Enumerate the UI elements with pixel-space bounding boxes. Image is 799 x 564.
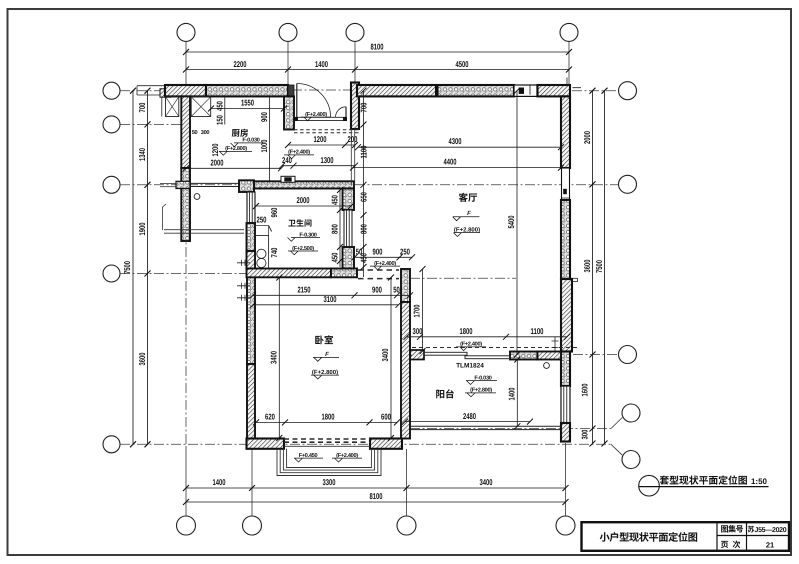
svg-text:300: 300 (413, 326, 423, 336)
svg-text:2000: 2000 (211, 157, 224, 167)
svg-text:900: 900 (259, 112, 269, 122)
svg-text:1200: 1200 (314, 134, 327, 144)
svg-text:900: 900 (373, 247, 383, 257)
svg-text:7500: 7500 (122, 261, 132, 274)
svg-text:1400: 1400 (507, 387, 517, 400)
svg-text:1340: 1340 (137, 148, 147, 161)
svg-text:2200: 2200 (234, 59, 247, 69)
svg-text:5400: 5400 (506, 215, 516, 228)
svg-text:450: 450 (329, 195, 339, 205)
svg-text:8100: 8100 (371, 42, 384, 52)
svg-text:650: 650 (359, 192, 369, 202)
svg-text:50: 50 (192, 130, 198, 136)
svg-text:2000: 2000 (297, 195, 310, 205)
svg-text:1100: 1100 (531, 326, 544, 336)
svg-text:150: 150 (214, 115, 224, 125)
svg-text:300: 300 (580, 429, 590, 439)
svg-text:3400: 3400 (380, 348, 390, 361)
svg-text:2000: 2000 (582, 131, 592, 144)
svg-text:J55—2020: J55—2020 (755, 527, 787, 534)
svg-text:620: 620 (265, 411, 275, 421)
svg-text:1300: 1300 (321, 155, 334, 165)
svg-text:200: 200 (348, 134, 358, 144)
svg-text:21: 21 (766, 540, 774, 549)
svg-text:F: F (325, 351, 329, 358)
svg-text:450: 450 (329, 252, 339, 262)
svg-text:1200: 1200 (210, 143, 220, 156)
svg-text:240: 240 (282, 155, 292, 165)
svg-text:3100: 3100 (324, 294, 337, 304)
svg-text:1600: 1600 (580, 383, 590, 396)
svg-text:1:50: 1:50 (751, 477, 768, 486)
svg-text:800: 800 (329, 224, 339, 234)
svg-text:900: 900 (372, 285, 382, 295)
svg-text:2480: 2480 (463, 411, 476, 421)
svg-text:3600: 3600 (137, 352, 147, 365)
svg-text:4300: 4300 (449, 136, 462, 146)
svg-text:7500: 7500 (594, 260, 604, 273)
svg-text:3400: 3400 (269, 351, 279, 364)
svg-text:700: 700 (137, 102, 147, 112)
svg-text:250: 250 (400, 247, 410, 257)
svg-text:TLM1824: TLM1824 (456, 363, 484, 370)
svg-text:3300: 3300 (323, 477, 336, 487)
svg-text:F: F (467, 210, 471, 217)
svg-text:700: 700 (359, 102, 369, 112)
svg-text:1400: 1400 (315, 59, 328, 69)
svg-text:8100: 8100 (370, 491, 383, 501)
svg-text:1100: 1100 (359, 145, 369, 158)
svg-text:1900: 1900 (137, 222, 147, 235)
svg-text:740: 740 (269, 247, 279, 257)
svg-text:3600: 3600 (582, 259, 592, 272)
svg-text:50: 50 (356, 247, 363, 257)
svg-text:1800: 1800 (460, 326, 473, 336)
svg-text:4400: 4400 (444, 157, 457, 167)
svg-text:960: 960 (269, 207, 279, 217)
svg-text:250: 250 (257, 215, 267, 225)
svg-text:2150: 2150 (298, 285, 311, 295)
svg-text:50: 50 (393, 285, 400, 295)
svg-text:3400: 3400 (480, 477, 493, 487)
svg-text:1550: 1550 (241, 98, 254, 108)
svg-text:600: 600 (381, 411, 391, 421)
svg-text:300: 300 (201, 130, 210, 136)
svg-text:4500: 4500 (456, 59, 469, 69)
svg-text:1800: 1800 (322, 411, 335, 421)
svg-text:450: 450 (214, 101, 224, 111)
svg-text:1400: 1400 (213, 477, 226, 487)
svg-text:800: 800 (359, 224, 369, 234)
svg-text:1700: 1700 (412, 304, 422, 317)
svg-text:1000: 1000 (259, 139, 269, 152)
